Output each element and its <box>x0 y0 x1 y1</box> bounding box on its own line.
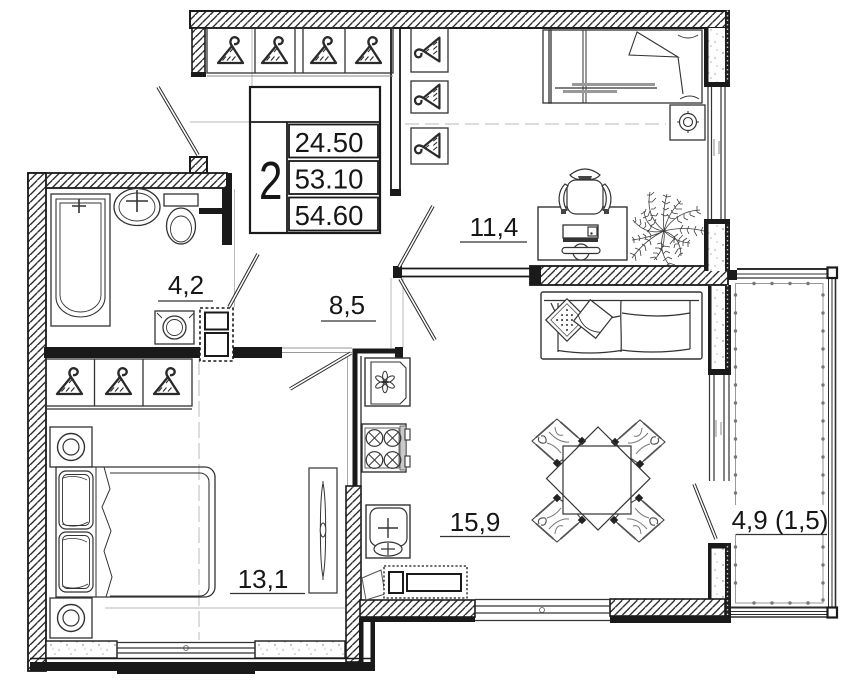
svg-text:24.50: 24.50 <box>295 127 364 158</box>
svg-text:15,9: 15,9 <box>450 507 501 537</box>
svg-text:13,1: 13,1 <box>238 564 289 594</box>
svg-text:8,5: 8,5 <box>329 290 365 320</box>
svg-text:2: 2 <box>259 151 282 211</box>
svg-text:4,2: 4,2 <box>168 270 204 300</box>
svg-text:11,4: 11,4 <box>470 212 519 242</box>
svg-text:54.60: 54.60 <box>295 200 364 231</box>
svg-text:4,9 (1,5): 4,9 (1,5) <box>732 505 829 535</box>
svg-text:53.10: 53.10 <box>295 164 364 195</box>
